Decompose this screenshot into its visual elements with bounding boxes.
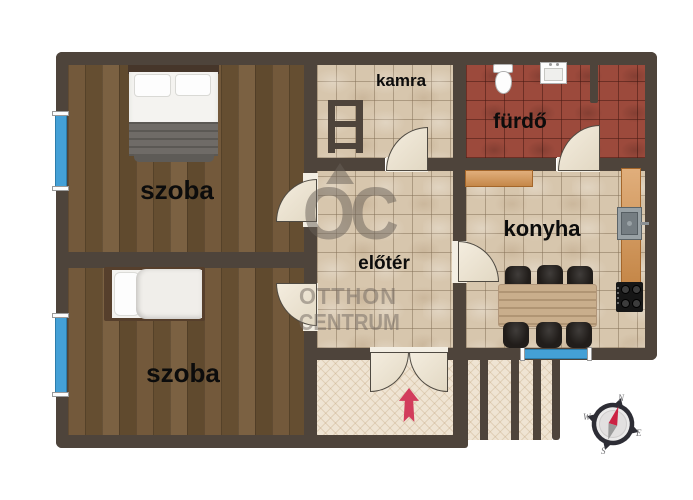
steps-right-wall bbox=[552, 358, 560, 440]
kitchen-tap bbox=[640, 222, 649, 225]
double-bed-blanket-edge bbox=[134, 154, 214, 162]
washbasin-tap bbox=[549, 63, 552, 66]
stove-burner bbox=[632, 285, 641, 294]
compass-label-s: S bbox=[601, 446, 606, 456]
window-sill bbox=[52, 392, 69, 397]
floor-plan-canvas: szoba szoba kamra fürdő konyha előtér OC… bbox=[0, 0, 693, 500]
stove-burner bbox=[632, 299, 641, 308]
step-divider-1 bbox=[480, 358, 488, 440]
shelf-ladder-rung bbox=[328, 100, 363, 106]
bathroom-label: fürdő bbox=[470, 110, 570, 134]
mid-right-wall-upper bbox=[453, 52, 466, 241]
mid-right-wall-lower bbox=[453, 283, 466, 348]
compass-label-n: N bbox=[617, 393, 625, 403]
watermark-line2: CENTRUM bbox=[299, 309, 398, 336]
shelf-ladder-rung bbox=[328, 143, 363, 149]
double-bed-blanket bbox=[129, 122, 218, 156]
pillow bbox=[134, 74, 171, 97]
stove-burner bbox=[621, 285, 630, 294]
shelf-ladder-rung bbox=[328, 121, 363, 127]
kitchen-window bbox=[524, 349, 588, 359]
bedroom-2-window bbox=[55, 317, 67, 393]
stove-knobs bbox=[617, 287, 619, 307]
kitchen-counter-top bbox=[465, 170, 533, 187]
kitchen-sink-drain bbox=[627, 221, 632, 226]
dining-table bbox=[498, 284, 597, 327]
outer-wall-right bbox=[645, 52, 657, 360]
hall-bottom-wall bbox=[304, 348, 370, 360]
toilet-bowl bbox=[495, 71, 512, 94]
pantry-label: kamra bbox=[351, 71, 451, 91]
pantry-bottom-wall-right bbox=[428, 158, 453, 171]
window-sill bbox=[520, 347, 525, 361]
compass-label-e: E bbox=[635, 428, 642, 438]
window-sill bbox=[52, 313, 69, 318]
washbasin-tap bbox=[556, 63, 559, 66]
step-divider-3 bbox=[533, 358, 541, 440]
outer-wall-bottom bbox=[56, 435, 468, 448]
compass-rose: N E S W bbox=[581, 392, 645, 456]
single-bed-duvet bbox=[136, 269, 202, 319]
washbasin-bowl bbox=[544, 68, 563, 81]
step-divider-2 bbox=[511, 358, 519, 440]
stove-burner bbox=[621, 299, 630, 308]
dining-chair bbox=[536, 322, 562, 348]
bedroom-2-label: szoba bbox=[113, 358, 253, 389]
window-sill bbox=[52, 186, 69, 191]
watermark-line1: OTTHON bbox=[299, 283, 398, 310]
bedroom-divider-wall bbox=[56, 252, 317, 268]
mid-left-wall-upper bbox=[304, 52, 317, 173]
bedroom-1-label: szoba bbox=[107, 175, 247, 206]
dining-chair bbox=[503, 322, 529, 348]
window-sill bbox=[587, 347, 592, 361]
porch-steps-divider-wall bbox=[453, 348, 468, 448]
pillow bbox=[175, 74, 211, 96]
dining-chair bbox=[566, 322, 592, 348]
window-sill bbox=[52, 111, 69, 116]
bathroom-stub-wall bbox=[590, 65, 598, 103]
kitchen-label: konyha bbox=[482, 216, 602, 242]
bedroom-1-window bbox=[55, 115, 67, 187]
watermark-logo: OC bbox=[302, 168, 394, 260]
